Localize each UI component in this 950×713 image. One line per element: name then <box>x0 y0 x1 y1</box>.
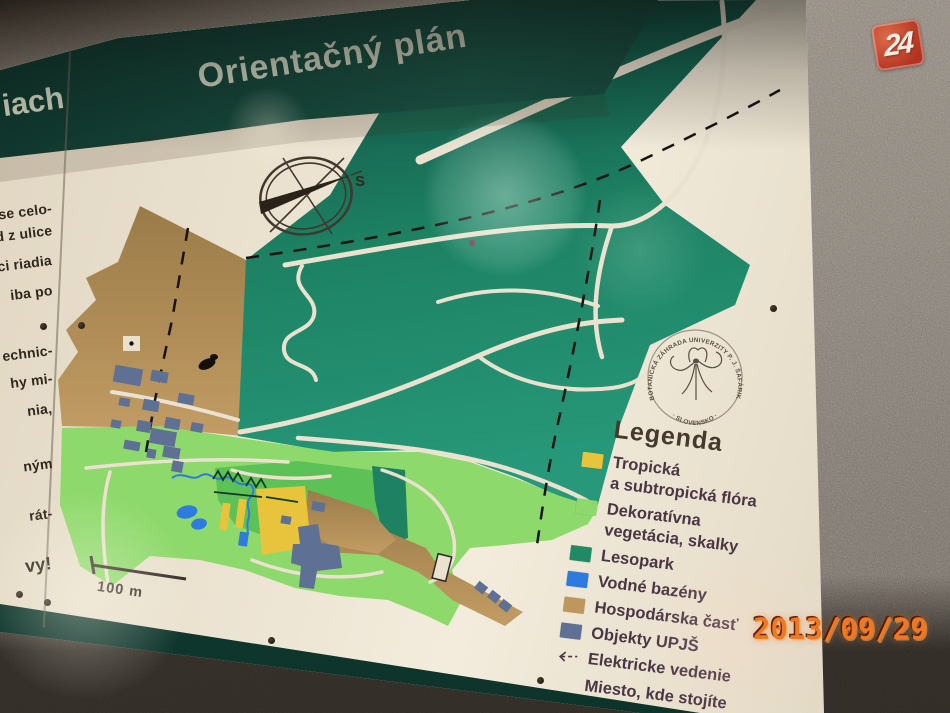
sign-panel: S Orientačný plán iach ase celo- d z uli… <box>0 0 950 713</box>
legend-swatch <box>560 622 583 640</box>
legend-swatch <box>569 545 592 563</box>
screw <box>78 322 85 329</box>
screw <box>44 599 51 606</box>
camera-timestamp: 2013/09/29 <box>753 612 928 646</box>
legend-spac er <box>555 676 576 679</box>
legend-swatch <box>563 597 586 615</box>
watermark-badge: 24 <box>871 19 926 72</box>
watermark-label: 24 <box>884 26 913 64</box>
legend-swatch <box>581 452 604 470</box>
screw <box>537 677 544 684</box>
photo-of-sign: S Orientačný plán iach ase celo- d z uli… <box>0 0 950 713</box>
dashed-arrow-icon <box>556 649 579 669</box>
svg-text:BOTANICKÁ ZÁHRADA UNIVERZITY P: BOTANICKÁ ZÁHRADA UNIVERZITY P. J. ŠAFÁR… <box>0 0 745 401</box>
logo-arc-top-text: BOTANICKÁ ZÁHRADA UNIVERZITY P. J. ŠAFÁR… <box>0 0 745 401</box>
legend-swatch <box>575 498 598 516</box>
legend-swatch <box>566 571 589 589</box>
logo-flower-icon <box>671 348 722 400</box>
legend-label: Lesopark <box>600 547 675 574</box>
screw <box>770 305 777 312</box>
legend-panel: Legenda Tropická a subtropická flóra Dek… <box>552 412 831 713</box>
screw <box>16 591 23 598</box>
screw <box>40 323 47 330</box>
screw <box>268 637 275 644</box>
